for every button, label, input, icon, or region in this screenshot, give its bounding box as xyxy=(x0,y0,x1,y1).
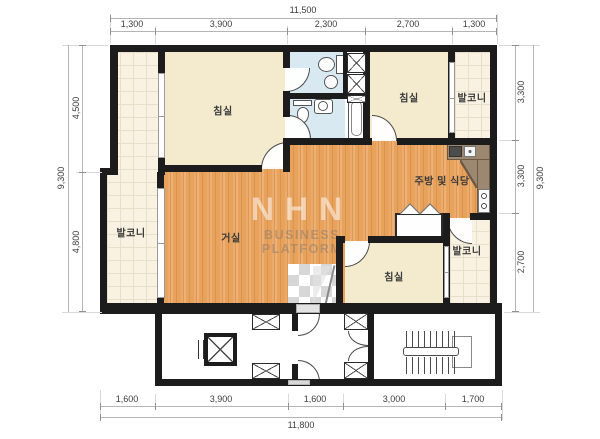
dim-right-segment: 2,700 xyxy=(516,251,526,274)
dim-tick xyxy=(155,403,156,410)
gas-stove-icon xyxy=(478,189,490,213)
dim-tick xyxy=(496,28,497,35)
wall-balcony-window-stub-lower xyxy=(157,297,164,305)
dim-top-segment: 2,300 xyxy=(315,19,338,29)
wall-left-lower xyxy=(100,168,107,311)
dim-top-total: 11,500 xyxy=(290,5,317,15)
wall-corridor-bottom xyxy=(155,379,502,386)
dim-bottom-segment: 1,600 xyxy=(304,394,327,404)
dim-tick xyxy=(79,172,86,173)
duct-shaft xyxy=(252,363,280,379)
wall-bedroom3-top xyxy=(368,236,443,243)
dim-line-left-total xyxy=(68,45,69,312)
wall-corridor-stub-upper xyxy=(292,314,298,331)
dim-right-segment: 3,300 xyxy=(516,165,526,188)
duct-shaft xyxy=(252,314,280,330)
entrance-threshold xyxy=(296,304,320,313)
toilet-icon xyxy=(318,57,335,72)
toilet-tank-icon xyxy=(293,100,312,106)
dim-tick xyxy=(365,28,366,35)
corridor-window xyxy=(288,380,310,385)
dim-tick xyxy=(501,414,502,421)
window-balcony-left-lower xyxy=(157,188,165,298)
dim-line-right-total xyxy=(533,45,534,312)
bathtub-inner xyxy=(351,101,362,136)
duct-shaft xyxy=(347,95,366,103)
dim-tick xyxy=(512,311,519,312)
elevator-door xyxy=(198,340,204,359)
duct-shaft xyxy=(344,313,368,330)
wall-left-upper xyxy=(110,45,118,175)
dim-tick xyxy=(501,403,502,410)
dim-tick xyxy=(155,28,156,35)
dim-top-segment: 3,900 xyxy=(210,19,233,29)
room-label-kitchen-dining: 주방 및 식당 xyxy=(414,173,469,188)
room-label-balcony-bottom-right: 발코니 xyxy=(452,243,481,258)
dim-tick xyxy=(100,403,101,410)
wall-bedroom1-bath-a xyxy=(283,45,290,68)
dim-left-total: 9,300 xyxy=(56,167,66,190)
dim-bottom-segment: 1,700 xyxy=(462,394,485,404)
watermark-logo: NHN xyxy=(232,191,372,228)
dim-tick xyxy=(445,403,446,410)
room-label-balcony-left: 발코니 xyxy=(116,225,145,240)
dim-tick xyxy=(110,28,111,35)
dim-tick xyxy=(79,311,86,312)
kitchen-sink-unit-icon xyxy=(449,146,462,157)
dim-line-bottom-total xyxy=(100,417,502,418)
wall-kitchen-balcony-b xyxy=(470,213,497,220)
sink-icon xyxy=(324,75,338,89)
room-label-bedroom-top-right: 침실 xyxy=(399,90,418,105)
dim-top-segment: 2,700 xyxy=(397,19,420,29)
dim-line-bottom-segments xyxy=(100,406,502,407)
stairs-flight-up xyxy=(406,331,457,348)
window-bedroom2-balcony xyxy=(449,62,455,133)
dim-left-segment: 4,500 xyxy=(71,97,81,120)
dim-line-top-total xyxy=(110,18,497,19)
wall-bath-bottom xyxy=(283,138,370,145)
dim-bottom-segment: 3,900 xyxy=(210,394,233,404)
dim-tick xyxy=(452,28,453,35)
extension-line xyxy=(62,312,102,313)
stairs-landing-bar xyxy=(403,347,459,356)
wall-right xyxy=(490,45,497,311)
dim-tick xyxy=(288,403,289,410)
dim-tick xyxy=(512,140,519,141)
dim-left-segment: 4,800 xyxy=(71,231,81,254)
duct-shaft xyxy=(347,74,366,94)
dim-right-segment: 3,300 xyxy=(516,81,526,104)
dim-tick xyxy=(512,213,519,214)
dim-top-segment: 1,300 xyxy=(121,19,144,29)
room-label-bedroom-bottom: 침실 xyxy=(384,269,403,284)
dim-tick xyxy=(287,28,288,35)
room-label-bedroom-top-left: 침실 xyxy=(213,103,232,118)
dim-tick xyxy=(496,15,497,22)
wall-top xyxy=(110,45,497,52)
dim-line-left-segments xyxy=(82,45,83,312)
floor-plan: NHN BUSINESS PLATFORM xyxy=(0,0,600,439)
wall-bedroom2-bottom xyxy=(397,138,497,145)
wall-corridor-column xyxy=(368,311,374,379)
dim-tick xyxy=(79,45,86,46)
closet-bifold-doors-icon xyxy=(399,202,441,215)
extension-line xyxy=(504,312,540,313)
wall-entrance-bedroom3 xyxy=(336,236,343,305)
dim-top-segment: 1,300 xyxy=(463,19,486,29)
wall-corridor-right xyxy=(495,303,502,386)
wall-corridor-left xyxy=(155,303,162,386)
sink-icon xyxy=(318,101,328,111)
kitchen-hob-icon xyxy=(464,146,476,157)
room-label-living-room: 거실 xyxy=(221,230,240,245)
duct-shaft xyxy=(344,362,368,379)
wall-bedroom1-bottom xyxy=(158,165,262,172)
wall-corridor-stub-lower xyxy=(292,364,298,379)
dim-bottom-total: 11,800 xyxy=(288,420,315,430)
duct-shaft xyxy=(347,53,366,73)
stairs-flight-down xyxy=(406,357,457,374)
room-label-balcony-top-right: 발코니 xyxy=(457,90,486,105)
dim-tick xyxy=(110,15,111,22)
dim-tick xyxy=(100,414,101,421)
dim-tick xyxy=(343,403,344,410)
extension-line xyxy=(502,390,503,420)
elevator xyxy=(204,333,237,366)
dim-bottom-segment: 3,000 xyxy=(383,394,406,404)
dim-line-top-segments xyxy=(110,31,497,32)
window-bedroom3-balcony xyxy=(444,246,449,298)
dim-right-total: 9,300 xyxy=(535,167,545,190)
dim-tick xyxy=(512,45,519,46)
dim-bottom-segment: 1,600 xyxy=(116,394,139,404)
extension-line xyxy=(497,14,498,44)
wall-bedroom2-bottom-stub xyxy=(365,138,372,145)
window-balcony-left-upper xyxy=(158,73,165,158)
